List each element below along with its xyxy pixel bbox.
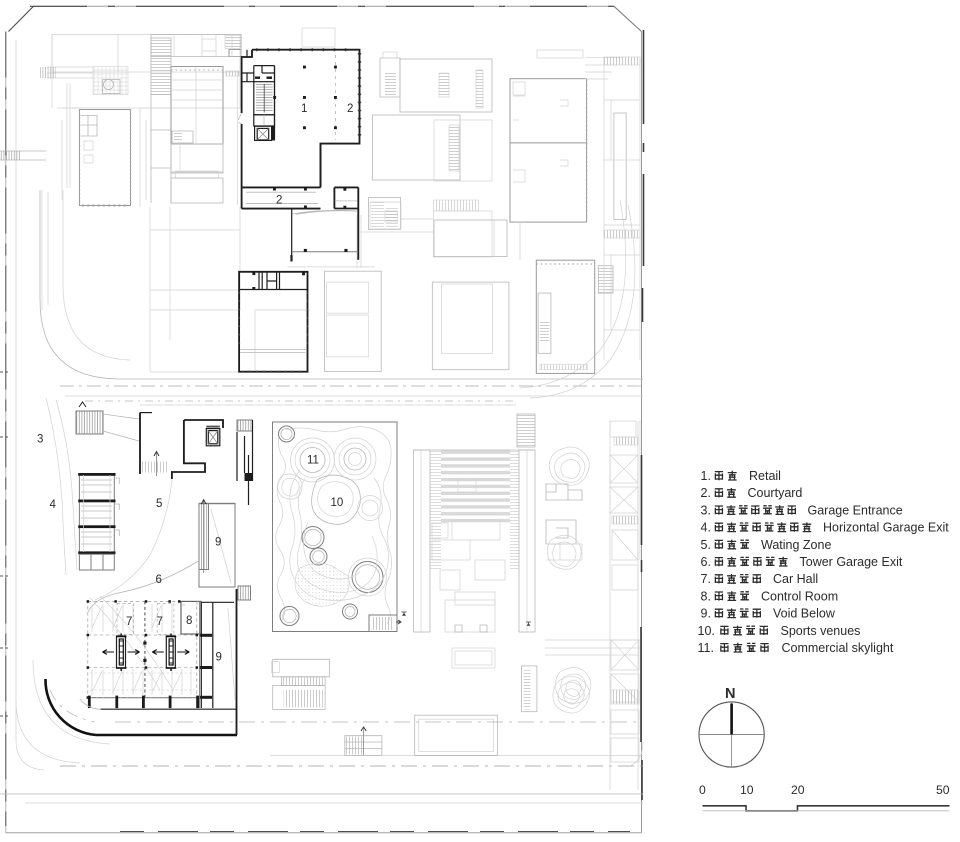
svg-text:9: 9 [216,652,222,664]
svg-text:0: 0 [699,783,706,797]
svg-text:11.: 11. [698,641,714,655]
svg-text:2: 2 [276,195,282,207]
svg-text:9.: 9. [701,607,711,621]
svg-text:8: 8 [186,615,192,627]
svg-text:Garage Entrance: Garage Entrance [808,503,903,517]
svg-text:1: 1 [301,103,307,115]
svg-text:4.: 4. [701,521,711,535]
svg-text:3: 3 [37,434,43,446]
svg-text:Commercial skylight: Commercial skylight [782,641,894,655]
svg-text:Sports venues: Sports venues [781,624,861,638]
svg-text:6: 6 [156,574,162,586]
svg-text:7.: 7. [701,572,711,586]
svg-text:10.: 10. [698,624,715,638]
svg-text:50: 50 [936,783,950,797]
svg-text:11: 11 [307,455,319,467]
svg-text:N: N [725,686,735,702]
svg-text:20: 20 [791,783,805,797]
svg-text:Wating Zone: Wating Zone [761,538,831,552]
svg-text:3.: 3. [701,503,711,517]
svg-text:7: 7 [126,616,132,628]
svg-text:1.: 1. [701,469,711,483]
svg-text:Car Hall: Car Hall [773,572,818,586]
svg-text:5.: 5. [701,538,711,552]
svg-text:Retail: Retail [749,469,781,483]
svg-text:Void Below: Void Below [773,607,836,621]
svg-text:Horizontal Garage Exit: Horizontal Garage Exit [823,521,949,535]
svg-text:7: 7 [157,616,163,628]
svg-text:10: 10 [740,783,754,797]
svg-text:5: 5 [156,498,162,510]
svg-text:2: 2 [347,103,353,115]
svg-text:8.: 8. [701,589,711,603]
svg-text:Courtyard: Courtyard [748,486,803,500]
svg-text:9: 9 [215,537,221,549]
svg-text:10: 10 [331,497,344,509]
svg-text:Tower Garage Exit: Tower Garage Exit [800,555,903,569]
svg-text:Control Room: Control Room [761,589,838,603]
svg-text:4: 4 [50,499,57,511]
svg-text:2.: 2. [701,486,711,500]
svg-text:6.: 6. [701,555,711,569]
